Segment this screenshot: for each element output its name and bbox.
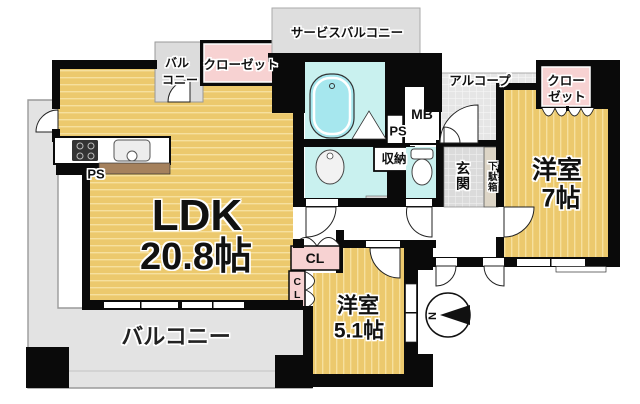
toilet-tank [411,149,433,159]
ps-hall-label: PS [389,125,406,138]
shoe-cabinet-label: 下駄箱 [486,161,496,193]
balcony-label: バルコニー [121,326,231,348]
stove-icon [72,140,98,161]
ldk-label: LDK [152,194,242,238]
washroom-door-arc [306,207,336,237]
cl2-label: CL [292,276,303,302]
small-balcony [155,42,203,102]
counter-brown [99,163,170,174]
balcony-pillar [26,347,69,388]
entrance-label: 玄関 [456,161,470,191]
western7-label: 洋室 [532,159,582,184]
small-balcony-label-1: バル [165,57,189,69]
mb-label: MB [411,107,433,121]
bathtub [310,74,354,138]
western51-size-label: 5.1帖 [334,321,384,342]
ldk-size-label: 20.8帖 [140,238,252,276]
floor-plan: LDK 20.8帖 洋室 7帖 洋室 5.1帖 バルコニー サービスバルコニー … [0,0,640,404]
western51-label: 洋室 [337,296,379,317]
closet7-label-2: ゼット [548,91,586,104]
storage-label: 収納 [381,153,406,166]
western7-size-label: 7帖 [542,187,581,212]
small-balcony-label-2: コニー [162,74,198,86]
ps-kitchen-label: PS [87,168,104,181]
alcove-label: アルコープ [449,75,510,88]
toilet-room [406,147,438,205]
service-balcony-label: サービスバルコニー [291,27,403,40]
toilet-door-arc [406,207,432,237]
closet7-label-1: クロー [547,75,585,88]
ldk-closet-label: クローゼット [203,59,278,72]
compass-north-label: N [426,312,437,320]
kitchen-counter [54,137,170,164]
cl1-label: CL [306,251,325,265]
toilet-bowl [412,159,432,185]
